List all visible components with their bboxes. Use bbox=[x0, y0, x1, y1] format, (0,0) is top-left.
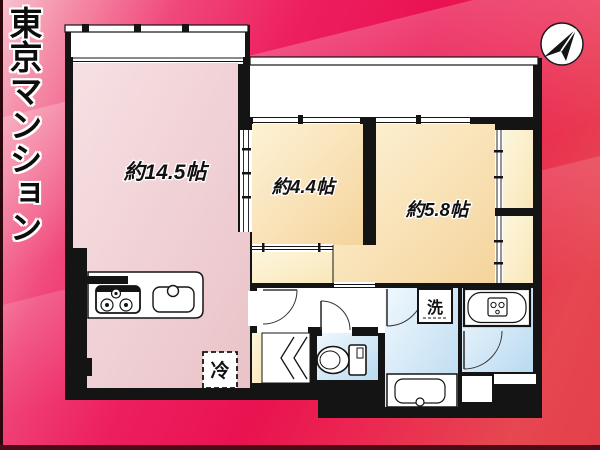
refrigerator-icon: 冷 bbox=[203, 352, 237, 388]
room-ldk-floor bbox=[73, 63, 250, 388]
balcony-left bbox=[65, 24, 248, 64]
closet-hall-bifold-doors bbox=[262, 333, 310, 383]
stove-icon bbox=[96, 286, 140, 313]
closet-hall-side bbox=[252, 333, 262, 383]
wall-stub bbox=[86, 358, 92, 376]
bathtub-icon bbox=[464, 289, 530, 326]
kitchen-counter bbox=[85, 272, 203, 318]
wall-stub bbox=[352, 327, 378, 336]
floorplan-drawing: 冷 洗 約14.5帖 bbox=[0, 0, 600, 450]
closet-4-4-floor bbox=[252, 252, 333, 283]
floorplan-advertisement: 冷 洗 約14.5帖 bbox=[0, 0, 600, 450]
refrigerator-label: 冷 bbox=[210, 359, 229, 382]
washing-machine-label: 洗 bbox=[427, 298, 443, 317]
room-5-8-entry-slider bbox=[334, 282, 375, 290]
property-title-vertical: 東京マンション bbox=[3, 6, 42, 436]
wall-thick-left bbox=[65, 248, 87, 400]
compass-north-icon bbox=[541, 23, 583, 65]
kitchen-sink-icon bbox=[153, 286, 194, 313]
room-label-5-8: 約5.8帖 bbox=[405, 199, 472, 220]
vanity-sink-icon bbox=[387, 374, 457, 407]
toilet-icon bbox=[317, 345, 366, 375]
room-label-ldk: 約14.5帖 bbox=[124, 160, 210, 184]
room-label-4-4: 約4.4帖 bbox=[271, 176, 338, 197]
sliding-partition bbox=[240, 130, 252, 232]
balcony-right bbox=[250, 57, 538, 125]
closet-5-8 bbox=[494, 130, 533, 283]
washing-machine-icon: 洗 bbox=[418, 289, 452, 323]
